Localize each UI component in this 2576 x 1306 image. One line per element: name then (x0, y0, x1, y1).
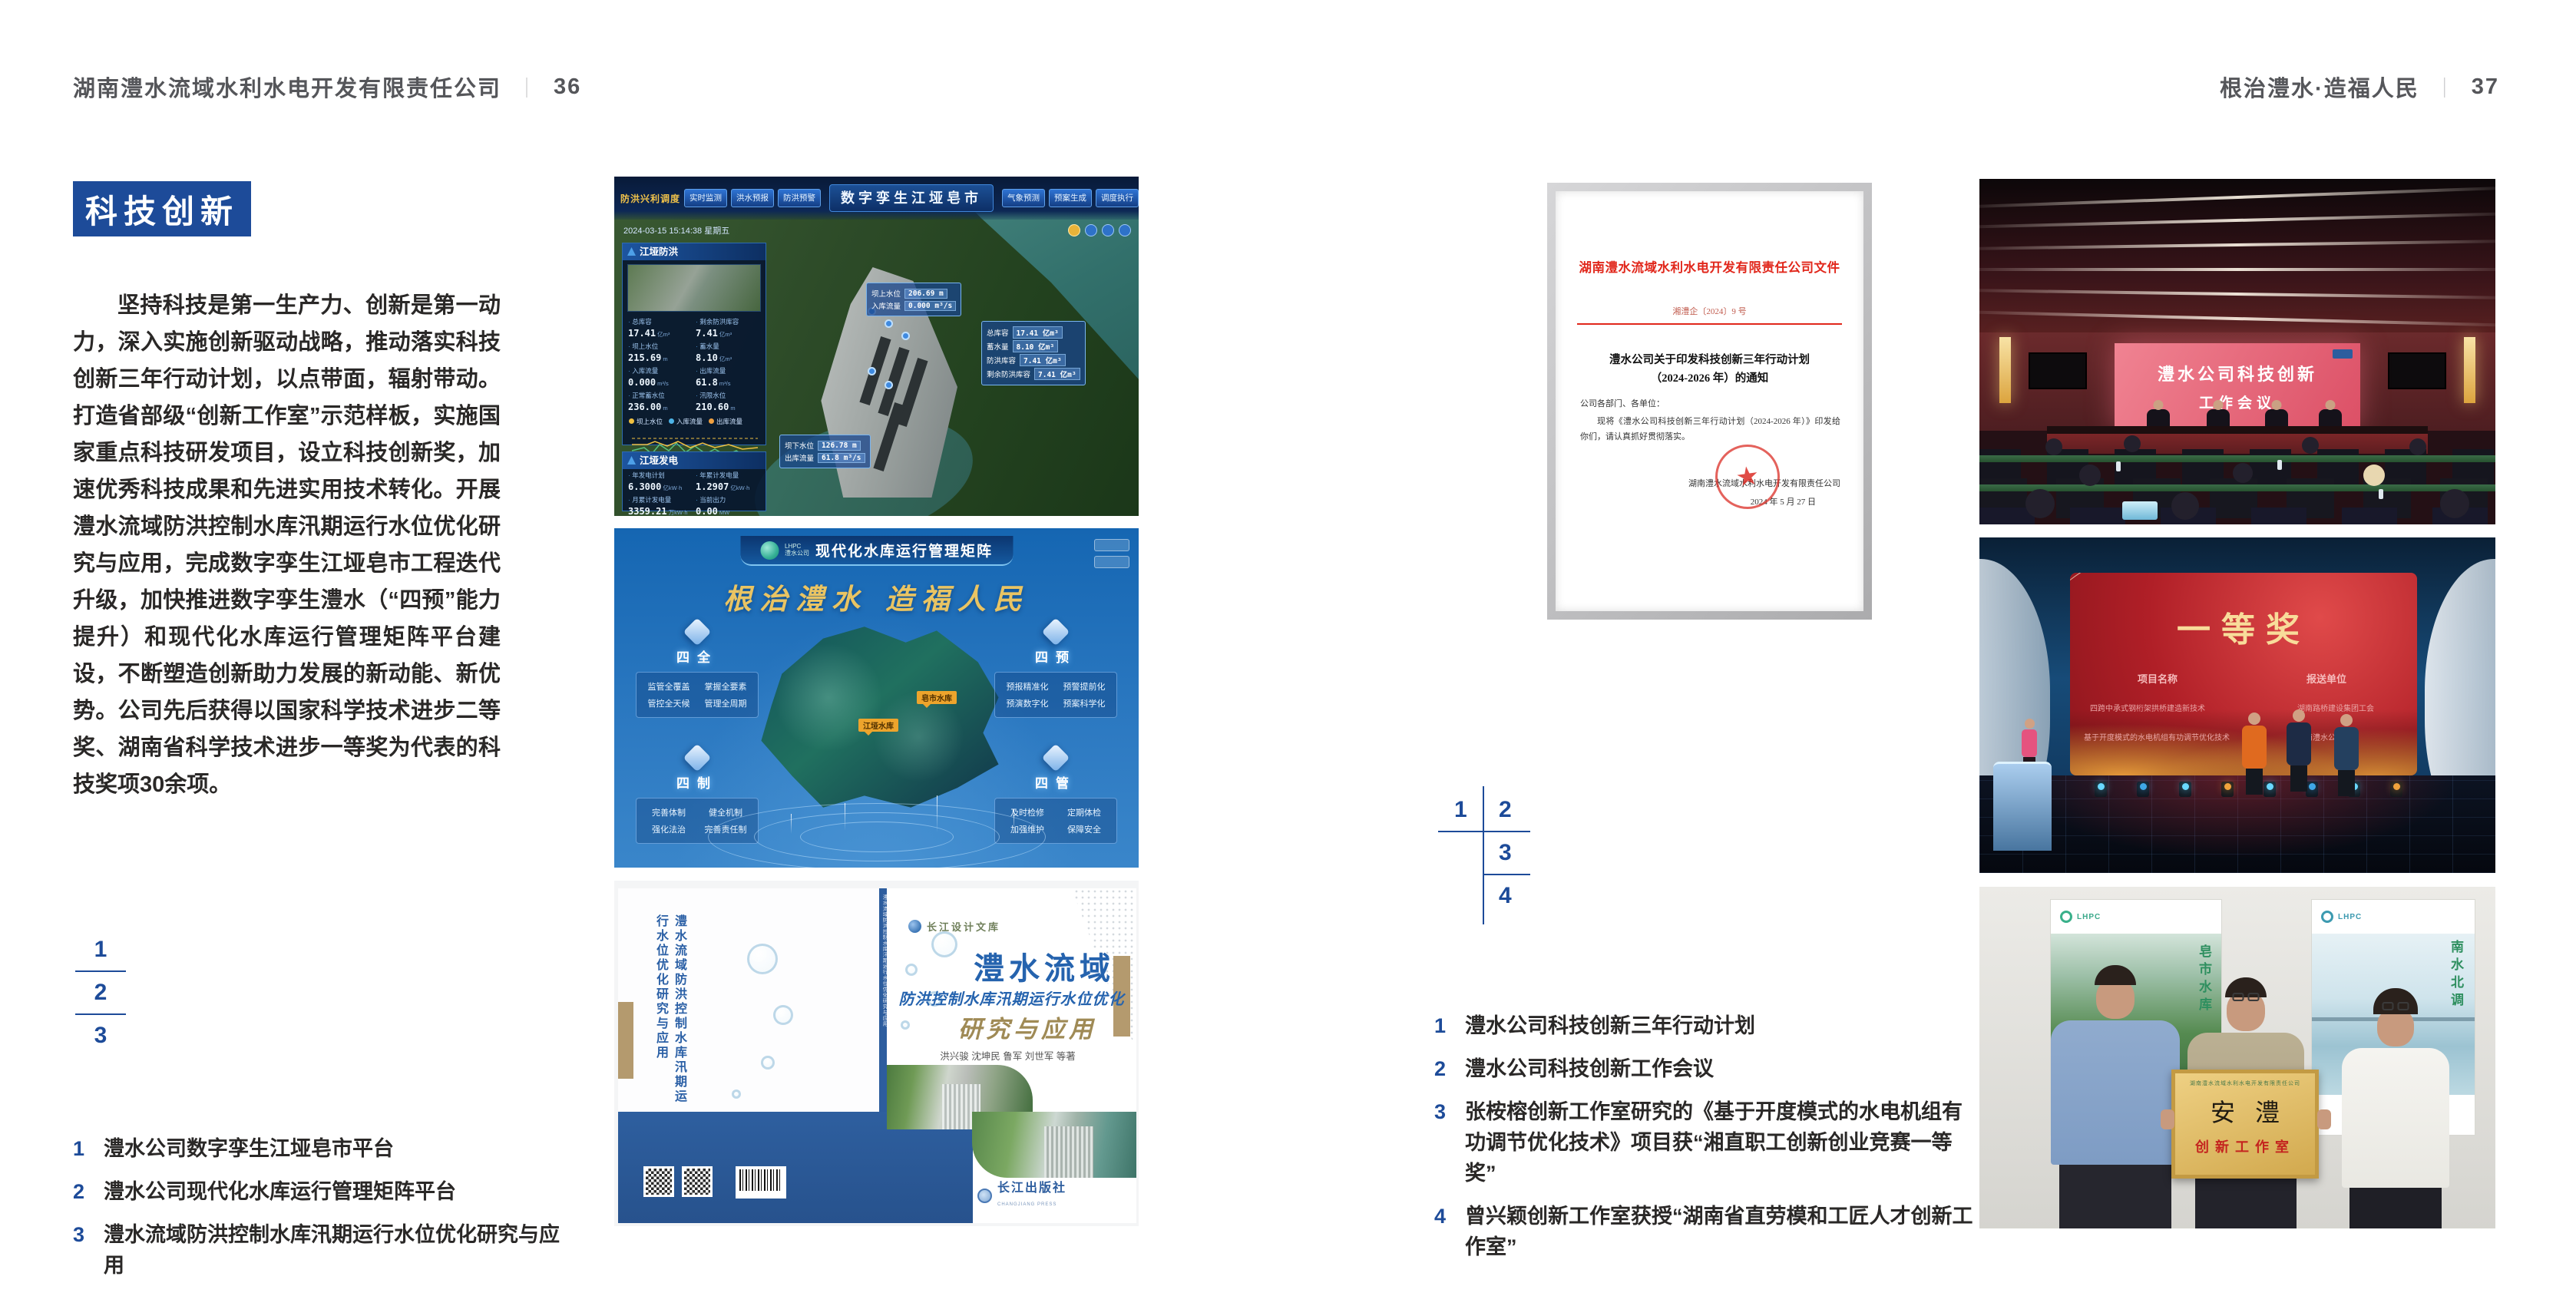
caption: 2 澧水公司现代化水库运行管理矩阵平台 (73, 1176, 580, 1207)
tab-dispatch-execution: 调度执行 (1096, 189, 1139, 207)
lhpc-logo-icon (2321, 911, 2333, 923)
brochure-spread: 湖南澧水流域水利水电开发有限责任公司 ｜ 36 根治澧水·造福人民 ｜ 37 科… (0, 0, 2576, 1306)
company-name: 湖南澧水流域水利水电开发有限责任公司 (73, 71, 501, 103)
gate-marker (901, 332, 910, 340)
map-label-zaoshi: 皂市水库 (917, 691, 957, 704)
document-page: 湖南澧水流域水利水电开发有限责任公司文件 湘澧企〔2024〕9 号 澧水公司关于… (1556, 191, 1863, 611)
module-icon (683, 618, 712, 646)
figure-workshop-photo: LHPC 皂市水库 LHPC 南水北调 (1979, 887, 2495, 1228)
series-badge: 长江设计文库 (908, 919, 1000, 934)
barcode (736, 1166, 786, 1199)
header-separator: ｜ (517, 73, 538, 101)
figure-number: 1 (75, 934, 126, 966)
person-blue-polo (2042, 965, 2188, 1228)
panel-title: 江垭防洪 (623, 243, 766, 260)
chart-legend: 坝上水位 入库流量 出库流量 (623, 415, 766, 428)
tab-flood-forecast: 洪水预报 (731, 189, 774, 207)
caption-list-left: 1 澧水公司数字孪生江垭皂市平台 2 澧水公司现代化水库运行管理矩阵平台 3 澧… (73, 1133, 580, 1293)
datetime-label: 2024-03-15 15:14:38 星期五 (623, 224, 729, 236)
running-head-right: 根治澧水·造福人民 ｜ 37 (2220, 71, 2499, 103)
figure-number: 3 (1499, 840, 1512, 866)
water-droplet (761, 1056, 775, 1070)
plaque-header: 湖南澧水流域水利水电开发有限责任公司 (2175, 1080, 2315, 1087)
workshop-plaque: 湖南澧水流域水利水电开发有限责任公司 安澧 创新工作室 (2171, 1070, 2319, 1179)
wall-lamp (2464, 337, 2475, 403)
section-title-badge: 科技创新 (73, 181, 251, 236)
publisher-globe-icon (908, 920, 921, 933)
person-white-tee (2334, 988, 2457, 1228)
platform-title: 数字孪生江垭皂市 (829, 184, 994, 212)
lhpc-logo-icon (760, 541, 779, 560)
tab-flood-warning: 防洪预警 (778, 189, 821, 207)
module-siyu: 四预 预报精准化预警提前化 预演数字化预案科学化 (994, 622, 1117, 718)
slogan-calligraphy: 根治澧水 造福人民 (614, 576, 1139, 617)
body-paragraph: 坚持科技是第一生产力、创新是第一动力，深入实施创新驱动战略，推动落实科技创新三年… (73, 287, 501, 803)
page-number-right: 37 (2472, 74, 2499, 100)
caption: 3 澧水流域防洪控制水库汛期运行水位优化研究与应用 (73, 1219, 580, 1281)
callout-upstream: 坝上水位206.69 m 入库流量0.000 m³/s (866, 283, 961, 316)
wall-tv (2029, 352, 2087, 389)
lhpc-logo-icon (2060, 911, 2072, 923)
column-header-project: 项目名称 (2138, 671, 2178, 686)
awardee-navy (2331, 714, 2362, 796)
logo-text: LHPC澧水公司 (785, 544, 809, 557)
corner-button (1094, 539, 1129, 551)
panel-power: 江垭发电 年发电计划6.3000亿kW·h 年累计发电量1.2907亿kW·h … (622, 451, 766, 511)
caption: 1 澧水公司科技创新三年行动计划 (1434, 1010, 1978, 1041)
tab-plan-generation: 预案生成 (1049, 189, 1092, 207)
water-droplet (905, 964, 918, 976)
gate-marker (885, 319, 893, 328)
plaque-title: 安澧 (2175, 1093, 2315, 1129)
tissue-box (2122, 501, 2158, 520)
platform-top-bar: 防洪兴利调度 实时监测 洪水预报 防洪预警 数字孪生江垭皂市 气象预测 预案生成… (614, 177, 1139, 220)
layers-icon (1085, 224, 1097, 236)
stage-light (2221, 782, 2234, 797)
document-number: 湘澧企〔2024〕9 号 (1556, 305, 1863, 317)
gate-marker (868, 367, 876, 375)
screen-logo (2333, 349, 2353, 359)
stage-light (2137, 782, 2149, 797)
figure-number: 4 (1499, 883, 1512, 909)
document-red-header: 湖南澧水流域水利水电开发有限责任公司文件 (1556, 257, 1863, 276)
header-separator: ｜ (2435, 73, 2456, 101)
figure-official-document: 湖南澧水流域水利水电开发有限责任公司文件 湘澧企〔2024〕9 号 澧水公司关于… (1547, 183, 1872, 620)
qr-code (682, 1166, 713, 1197)
module-icon (1042, 744, 1070, 772)
presenter-suit (2283, 709, 2314, 792)
divider (75, 1013, 126, 1015)
watershed-map (751, 619, 1009, 815)
dam-thumbnail (627, 264, 761, 312)
module-icon (1042, 618, 1070, 646)
toolbar-icons (1068, 224, 1131, 236)
platform-title: 现代化水库运行管理矩阵 (815, 540, 993, 560)
caption-list-right: 1 澧水公司科技创新三年行动计划 2 澧水公司科技创新工作会议 3 张桉榕创新工… (1434, 1010, 1978, 1275)
tab-weather-forecast: 气象预测 (1002, 189, 1045, 207)
figure-number: 1 (1454, 797, 1467, 823)
desk-mat (1979, 455, 2495, 462)
stage-light (2390, 782, 2402, 797)
award-title: 一等奖 (2070, 602, 2417, 651)
wall-lamp (1999, 337, 2011, 403)
user-icon (1068, 224, 1080, 236)
qr-code (643, 1166, 674, 1197)
mode-label: 防洪兴利调度 (620, 192, 680, 205)
gate-marker (885, 381, 893, 389)
divider (75, 970, 126, 972)
figure-book-cover: 澧水流域防洪控制水库汛期运行水位优化研究与应用 澧水流域防洪控制水库汛期运行水位… (614, 881, 1139, 1226)
document-salutation: 公司各部门、各单位： (1580, 397, 1665, 409)
caption: 2 澧水公司科技创新工作会议 (1434, 1053, 1978, 1084)
caption: 1 澧水公司数字孪生江垭皂市平台 (73, 1133, 580, 1164)
settings-icon (1119, 224, 1131, 236)
audience-row (1979, 508, 2495, 524)
tab-realtime-monitoring: 实时监测 (684, 189, 727, 207)
book-title-tail: 研究与应用 (958, 1010, 1096, 1044)
desk-mat (1979, 484, 2495, 491)
platform-header: LHPC澧水公司 现代化水库运行管理矩阵 (740, 536, 1013, 566)
page-number-left: 36 (554, 74, 581, 100)
water-droplet (901, 1020, 910, 1030)
caption: 3 张桉榕创新工作室研究的《基于开度模式的水电机组有功调节优化技术》项目获“湘直… (1434, 1096, 1978, 1189)
locate-icon (1102, 224, 1114, 236)
panel-flood: 江垭防洪 总库容17.41亿m³ 剩余防洪库容7.41亿m³ 坝上水位215.6… (622, 243, 766, 445)
document-body: 现将《澧水公司科技创新三年行动计划（2024-2026 年）》印发给你们，请认真… (1580, 414, 1840, 445)
book-title-main: 澧水流域 (974, 944, 1115, 988)
corner-button (1094, 556, 1129, 568)
module-siquan: 四全 监管全覆盖掌握全要素 管控全天候管理全周期 (636, 622, 759, 718)
callout-downstream: 坝下水位126.78 m 出库流量61.8 m³/s (779, 435, 871, 468)
water-droplet (732, 1089, 741, 1099)
book-title-sub: 防洪控制水库汛期运行水位优化 (891, 987, 1132, 1009)
back-cover-vertical-title: 澧水流域防洪控制水库汛期运行水位优化研究与应用 (651, 914, 688, 1116)
figure-matrix-platform: LHPC澧水公司 现代化水库运行管理矩阵 根治澧水 造福人民 皂市水库 江垭水库… (614, 528, 1139, 868)
module-icon (683, 744, 712, 772)
ripple-ring (800, 822, 954, 852)
stage-light (2179, 782, 2191, 797)
slogan: 根治澧水·造福人民 (2220, 71, 2419, 103)
water-droplet (747, 944, 778, 974)
red-rule (1577, 323, 1842, 325)
book-authors: 洪兴骏 沈坤民 鲁军 刘世军 等著 (887, 1048, 1129, 1063)
lectern (1993, 762, 2052, 851)
water-droplet (931, 931, 957, 957)
figure-number: 2 (75, 977, 126, 1009)
map-label-jiangya: 江垭水库 (858, 719, 898, 732)
publisher-logo-icon (977, 1189, 992, 1203)
ceiling (1979, 179, 2495, 336)
awardee-orange (2239, 713, 2270, 795)
figure-award-stage-photo: 一等奖 项目名称 报送单位 四跨中承式钢桁架拱桥建造新技术 湖南路桥建设集团工会… (1979, 537, 2495, 873)
figure-meeting-photo: 澧水公司科技创新 工作会议 (1979, 179, 2495, 524)
divider (1483, 874, 1530, 875)
divider (1438, 831, 1530, 832)
figure-index-right: 1 2 3 4 (1434, 780, 1534, 930)
stage-light (2095, 782, 2107, 797)
dam-photo-2 (972, 1112, 1136, 1178)
figure-index-left: 1 2 3 (75, 934, 126, 1052)
plaque-subtitle: 创新工作室 (2175, 1136, 2315, 1156)
tan-accent (618, 1002, 633, 1079)
running-head-left: 湖南澧水流域水利水电开发有限责任公司 ｜ 36 (73, 71, 581, 103)
figure-digital-twin-platform: 防洪兴利调度 实时监测 洪水预报 防洪预警 数字孪生江垭皂市 气象预测 预案生成… (614, 177, 1139, 516)
rostrum-table (2047, 426, 2428, 434)
flood-stats: 总库容17.41亿m³ 剩余防洪库容7.41亿m³ 坝上水位215.69m 蓄水… (623, 316, 766, 415)
panel-title: 江垭发电 (623, 452, 766, 469)
figure-number: 2 (1499, 797, 1512, 823)
callout-storage: 总库容17.41 亿m³ 蓄水量8.10 亿m³ 防洪库容7.41 亿m³ 剩余… (981, 321, 1086, 385)
power-stats: 年发电计划6.3000亿kW·h 年累计发电量1.2907亿kW·h 月累计发电… (623, 469, 766, 516)
publisher-mark: 长江出版社 CHANGJIANG PRESS (977, 1182, 1066, 1209)
wall-tv (2388, 352, 2446, 389)
caption: 4 曾兴颖创新工作室获授“湖南省直劳模和工匠人才创新工作室” (1434, 1201, 1978, 1262)
column-header-org: 报送单位 (2306, 671, 2346, 686)
water-droplet (773, 1005, 793, 1025)
divider (1483, 786, 1484, 924)
document-title: 澧水公司关于印发科技创新三年行动计划（2024-2026 年）的通知 (1556, 351, 1863, 388)
figure-number: 3 (75, 1020, 126, 1052)
stage-floor (1979, 775, 2495, 873)
